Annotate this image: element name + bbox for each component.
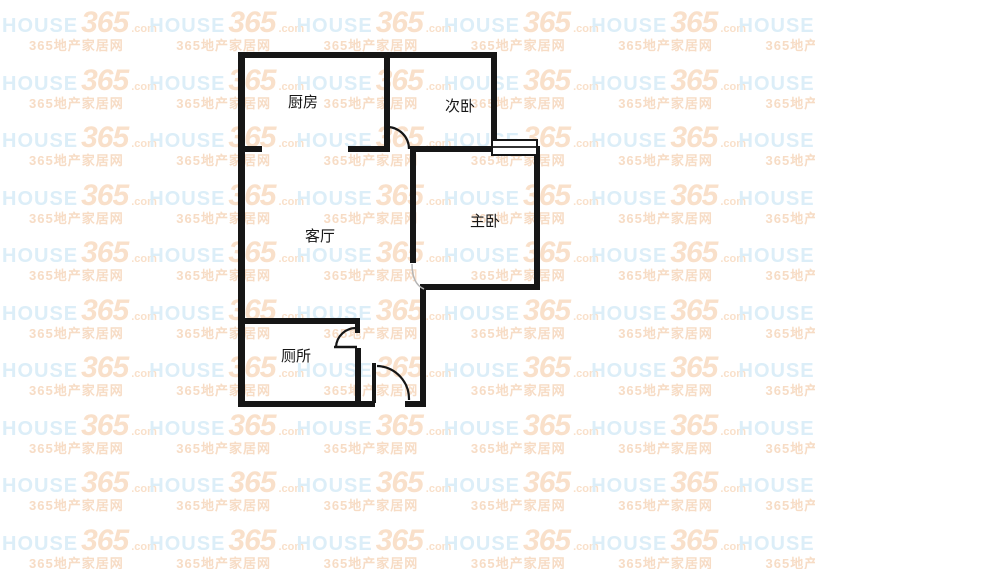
wall-kitchen-bottom-b [348, 146, 384, 152]
wall-toilet-top [238, 318, 360, 324]
wall-bedroom2-bottom [410, 146, 491, 152]
wall-kitchen-bottom-a [238, 146, 262, 152]
room-label-bedroom-secondary: 次卧 [445, 98, 475, 115]
room-label-toilet: 厕所 [281, 348, 311, 365]
wall-master-bottom [420, 284, 540, 290]
wall-hallway-right [420, 284, 426, 407]
wall-master-right [534, 146, 540, 290]
door-arc-bedroom2 [387, 127, 409, 149]
door-arc-toilet [336, 328, 357, 347]
room-label-kitchen: 厨房 [288, 94, 318, 111]
room-label-bedroom-master: 主卧 [470, 213, 500, 230]
wall-living-master-divider [410, 146, 416, 263]
wall-top [238, 52, 497, 58]
room-label-living-room: 客厅 [305, 228, 335, 245]
floor-plan: 厨房 次卧 客厅 主卧 厕所 [0, 0, 994, 569]
door-leaf-entrance [372, 363, 376, 403]
wall-left [238, 52, 245, 407]
wall-toilet-right [355, 348, 361, 401]
wall-kitchen-divider [384, 52, 390, 152]
door-arc-entrance [377, 366, 409, 400]
wall-bottom-left [238, 401, 375, 407]
wall-bedroom2-right [491, 52, 497, 146]
